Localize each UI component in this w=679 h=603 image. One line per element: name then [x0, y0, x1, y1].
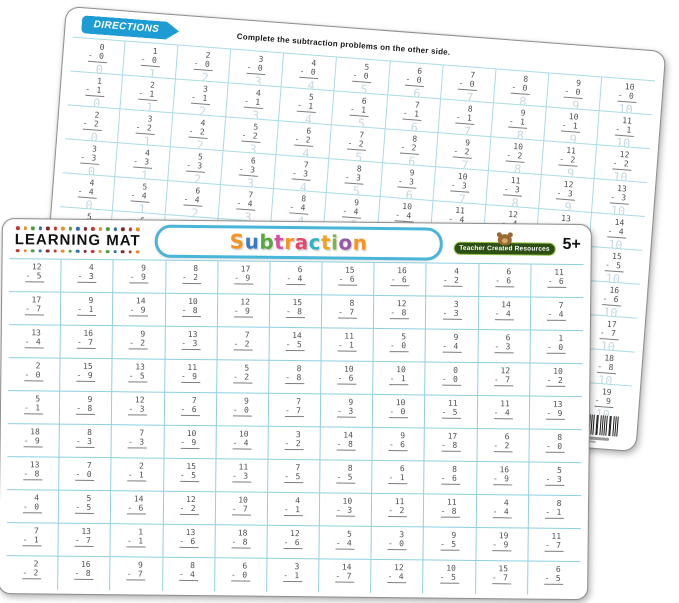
problem-cell: 9-3: [321, 394, 374, 428]
problem-cell: 18-8: [215, 525, 268, 559]
title-letter: u: [245, 230, 260, 254]
problem-cell: 2-20: [65, 105, 120, 143]
problem-cell: 2-2: [6, 556, 59, 590]
problem-cell: 3-0: [372, 527, 425, 561]
problem-cell: 15-6: [322, 262, 375, 296]
problem-cell: 6-3: [478, 330, 531, 364]
problem-cell: 6-42: [166, 181, 221, 219]
problem-cell: 5-05: [335, 57, 390, 95]
problem-cell: 12-3: [112, 392, 165, 426]
problem-cell: 5-1: [8, 391, 61, 425]
problem-cell: 1-10: [68, 71, 123, 109]
title-letter: o: [338, 231, 353, 255]
problem-cell: 4-31: [115, 143, 170, 181]
problem-cell: 13-310: [592, 179, 647, 217]
problem-cell: 9-09: [547, 73, 602, 111]
problem-cell: 7-4: [531, 298, 584, 332]
problem-cell: 16-610: [584, 281, 639, 319]
problem-cell: 8-08: [494, 69, 549, 107]
problem-cell: 9-6: [373, 428, 426, 462]
problem-cell: 14-7: [319, 559, 372, 593]
problem-cell: 6-5: [528, 562, 581, 596]
title-letter: b: [259, 230, 274, 254]
problem-cell: 5-3: [529, 463, 582, 497]
problem-cell: 4-0: [7, 490, 60, 524]
problem-cell: 7-3: [112, 425, 165, 459]
problem-cell: 11-6: [531, 265, 584, 299]
problem-cell: 4-2: [427, 263, 480, 297]
problem-cell: 9-7: [110, 557, 163, 591]
problem-cell: 15-8: [270, 295, 323, 329]
problem-cell: 11-1: [322, 328, 375, 362]
problem-cell: 17-9: [218, 261, 271, 295]
problem-cell: 9-0: [217, 393, 270, 427]
problem-cell: 13-7: [59, 524, 112, 558]
problem-cell: 13-6: [163, 525, 216, 559]
problem-cell: 11-38: [486, 171, 541, 209]
problem-cell: 0-00: [70, 38, 125, 76]
problem-cell: 8-35: [327, 159, 382, 197]
problem-cell: 9-2: [113, 326, 166, 360]
publisher-logo: Teacher Created Resources: [456, 233, 552, 255]
problem-cell: 10-2: [530, 364, 583, 398]
problem-cell: 3-30: [62, 139, 117, 177]
problem-cell: 3-21: [118, 109, 173, 147]
problem-cell: 9-27: [436, 133, 491, 171]
problem-cell: 12-2: [163, 492, 216, 526]
problem-cell: 14-410: [589, 213, 644, 251]
problem-cell: 9-1: [61, 293, 114, 327]
worksheet-mat: LEARNING MAT Subtraction Teacher Created…: [0, 218, 592, 600]
problem-cell: 8-26: [383, 129, 438, 167]
problem-cell: 8-17: [438, 99, 493, 137]
decorative-dots-top: [16, 226, 140, 231]
problem-cell: 8-3: [60, 425, 113, 459]
brand-block: LEARNING MAT: [15, 226, 141, 253]
problem-cell: 3-03: [229, 50, 284, 88]
problem-cell: 10-6: [321, 361, 374, 395]
problem-cell: 7-16: [385, 95, 440, 133]
problem-cell: 13-3: [165, 327, 218, 361]
problem-cell: 6-06: [388, 61, 443, 99]
problem-cell: 12-39: [539, 175, 594, 213]
problem-cell: 8-8: [269, 361, 322, 395]
problem-cell: 10-9: [164, 426, 217, 460]
subject-title-pill: Subtraction: [154, 224, 442, 260]
problem-cell: 5-0: [374, 329, 427, 363]
problem-cell: 16-8: [58, 557, 111, 591]
problem-cell: 6-24: [277, 121, 332, 159]
problem-cell: 4-40: [60, 173, 115, 211]
problem-cell: 6-4: [270, 262, 323, 296]
problem-cell: 7-34: [274, 155, 329, 193]
problem-cell: 10-28: [489, 137, 544, 175]
problem-cell: 4-3: [61, 260, 114, 294]
problem-cell: 11-2: [372, 494, 425, 528]
problem-cell: 1-1: [111, 524, 164, 558]
title-letter: S: [230, 229, 245, 253]
problem-cell: 15-7: [476, 561, 529, 595]
problem-cell: 2-1: [112, 458, 165, 492]
problem-cell: 0-0: [426, 362, 479, 396]
problem-cell: 7-07: [441, 65, 496, 103]
problem-cell: 4-1: [268, 493, 321, 527]
problem-cell: 7-5: [268, 460, 321, 494]
title-letter: a: [295, 230, 309, 254]
problem-cell: 7-43: [219, 185, 274, 223]
problem-cell: 13-5: [113, 359, 166, 393]
problem-cell: 8-2: [166, 261, 219, 295]
problem-cell: 9-9: [114, 260, 167, 294]
problem-cell: 12-9: [218, 294, 271, 328]
problem-cell: 17-8: [425, 428, 478, 462]
problem-cell: 13-9: [530, 397, 583, 431]
problem-cell: 15-5: [164, 459, 217, 493]
problem-cell: 9-4: [426, 329, 479, 363]
problem-cell: 10-0: [373, 395, 426, 429]
problem-cell: 10-010: [600, 77, 655, 115]
problem-cell: 11-4: [477, 396, 530, 430]
problem-cell: 7-0: [59, 458, 112, 492]
problem-cell: 3-3: [426, 296, 479, 330]
problem-cell: 12-4: [371, 560, 424, 594]
problem-cell: 5-32: [168, 147, 223, 185]
problem-cell: 16-6: [374, 263, 427, 297]
problem-cell: 2-11: [120, 75, 175, 113]
problem-cell: 4-22: [171, 113, 226, 151]
problem-cell: 11-5: [425, 395, 478, 429]
directions-banner: DIRECTIONS: [81, 15, 180, 40]
problem-cell: 14-5: [269, 328, 322, 362]
bear-icon: [497, 234, 511, 245]
problem-cell: 6-15: [332, 91, 387, 129]
brand-title: LEARNING MAT: [15, 232, 141, 248]
decorative-dots-bottom: [16, 249, 140, 254]
problem-cell: 15-510: [587, 247, 642, 285]
problem-cell: 11-110: [597, 111, 652, 149]
problem-cell: 5-14: [279, 87, 334, 125]
problem-cell: 8-4: [163, 558, 216, 592]
problem-cell: 5-41: [113, 177, 168, 215]
problem-cell: 1-01: [123, 42, 178, 80]
problem-cell: 10-19: [544, 107, 599, 145]
problem-cell: 4-13: [226, 83, 281, 121]
problem-cell: 8-1: [529, 496, 582, 530]
problem-cell: 8-6: [425, 461, 478, 495]
problem-cell: 5-23: [224, 117, 279, 155]
problem-cell: 8-7: [322, 295, 375, 329]
problem-cell: 5-2: [217, 360, 270, 394]
problem-cell: 9-36: [380, 163, 435, 201]
problem-cell: 12-6: [267, 526, 320, 560]
problem-cell: 6-0: [215, 558, 268, 592]
problem-cell: 14-8: [321, 427, 374, 461]
problem-cell: 9-8: [60, 392, 113, 426]
problem-cell: 4-4: [476, 495, 529, 529]
problem-cell: 6-1: [372, 461, 425, 495]
problem-cell: 17-7: [9, 292, 62, 326]
problem-cell: 10-8: [165, 294, 218, 328]
product-photo: DIRECTIONS Complete the subtraction prob…: [0, 0, 679, 603]
problem-cell: 5-4: [320, 526, 373, 560]
problem-cell: 11-9: [165, 360, 218, 394]
problem-grid: 12-54-39-98-217-96-415-616-64-26-611-617…: [6, 258, 583, 595]
problem-cell: 10-1: [373, 362, 426, 396]
problem-cell: 7-6: [164, 393, 217, 427]
title-letter: t: [321, 230, 331, 254]
problem-cell: 3-1: [267, 559, 320, 593]
title-letter: r: [284, 230, 295, 254]
problem-cell: 10-3: [320, 493, 373, 527]
subject-title: Subtraction: [230, 229, 368, 254]
title-letter: c: [309, 230, 322, 254]
problem-cell: 8-5: [320, 460, 373, 494]
problem-cell: 10-37: [433, 167, 488, 205]
problem-cell: 12-8: [374, 296, 427, 330]
problem-cell: 11-3: [216, 459, 269, 493]
problem-cell: 16-9: [477, 462, 530, 496]
problem-cell: 6-6: [479, 264, 532, 298]
title-letter: n: [353, 231, 368, 255]
problem-cell: 12-7: [478, 363, 531, 397]
problem-cell: 1-0: [530, 331, 583, 365]
problem-cell: 14-9: [113, 293, 166, 327]
problem-cell: 5-5: [59, 491, 112, 525]
problem-cell: 11-29: [541, 141, 596, 179]
problem-cell: 7-2: [217, 327, 270, 361]
age-badge: 5+: [562, 236, 580, 254]
problem-cell: 2-0: [8, 358, 61, 392]
problem-cell: 14-4: [478, 297, 531, 331]
problem-cell: 15-9: [60, 359, 113, 393]
problem-cell: 13-4: [9, 325, 62, 359]
problem-cell: 12-210: [594, 145, 649, 183]
problem-cell: 3-12: [173, 79, 228, 117]
problem-cell: 16-7: [61, 326, 114, 360]
title-letter: t: [274, 230, 284, 254]
worksheet-header: LEARNING MAT Subtraction Teacher Created…: [3, 219, 591, 264]
problem-cell: 10-7: [216, 492, 269, 526]
problem-cell: 6-33: [221, 151, 276, 189]
problem-cell: 10-4: [216, 426, 269, 460]
problem-cell: 11-7: [528, 529, 581, 563]
problem-cell: 7-1: [6, 523, 59, 557]
problem-cell: 4-04: [282, 54, 337, 92]
problem-cell: 2-02: [176, 46, 231, 84]
problem-cell: 3-2: [268, 427, 321, 461]
problem-cell: 7-25: [330, 125, 385, 163]
problem-cell: 14-6: [111, 491, 164, 525]
problem-cell: 13-8: [7, 457, 60, 491]
problem-cell: 19-9: [476, 528, 529, 562]
problem-cell: 9-5: [424, 527, 477, 561]
problem-cell: 8-0: [529, 430, 582, 464]
problem-cell: 6-2: [477, 429, 530, 463]
problem-cell: 10-5: [424, 560, 477, 594]
problem-cell: 7-7: [269, 394, 322, 428]
problem-cell: 9-18: [491, 103, 546, 141]
problem-cell: 18-9: [7, 424, 60, 458]
problem-cell: 12-5: [9, 259, 62, 293]
problem-cell: 11-8: [424, 494, 477, 528]
